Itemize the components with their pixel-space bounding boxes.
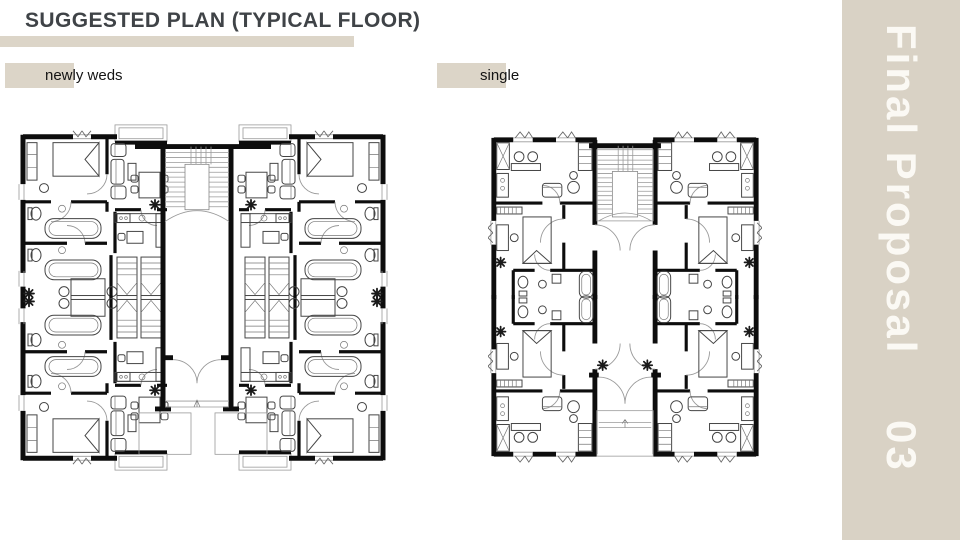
floor-plan-newlyweds-svg xyxy=(15,117,391,478)
floor-plan-single-svg xyxy=(488,126,762,468)
floor-plan-newlyweds xyxy=(15,117,391,478)
newlyweds-label: newly weds xyxy=(45,67,123,84)
sidebar-number: 03 xyxy=(877,420,925,473)
sidebar-title: Final Proposal xyxy=(877,24,925,355)
floor-plan-single xyxy=(488,126,762,468)
single-label: single xyxy=(480,67,519,84)
sidebar: Final Proposal 03 16 xyxy=(842,0,960,540)
staircase xyxy=(589,146,661,221)
page-title: SUGGESTED PLAN (TYPICAL FLOOR) xyxy=(25,9,420,33)
entrance-doors xyxy=(589,360,661,456)
slide: SUGGESTED PLAN (TYPICAL FLOOR) newly wed… xyxy=(0,0,960,540)
title-underline-bar xyxy=(0,36,354,47)
